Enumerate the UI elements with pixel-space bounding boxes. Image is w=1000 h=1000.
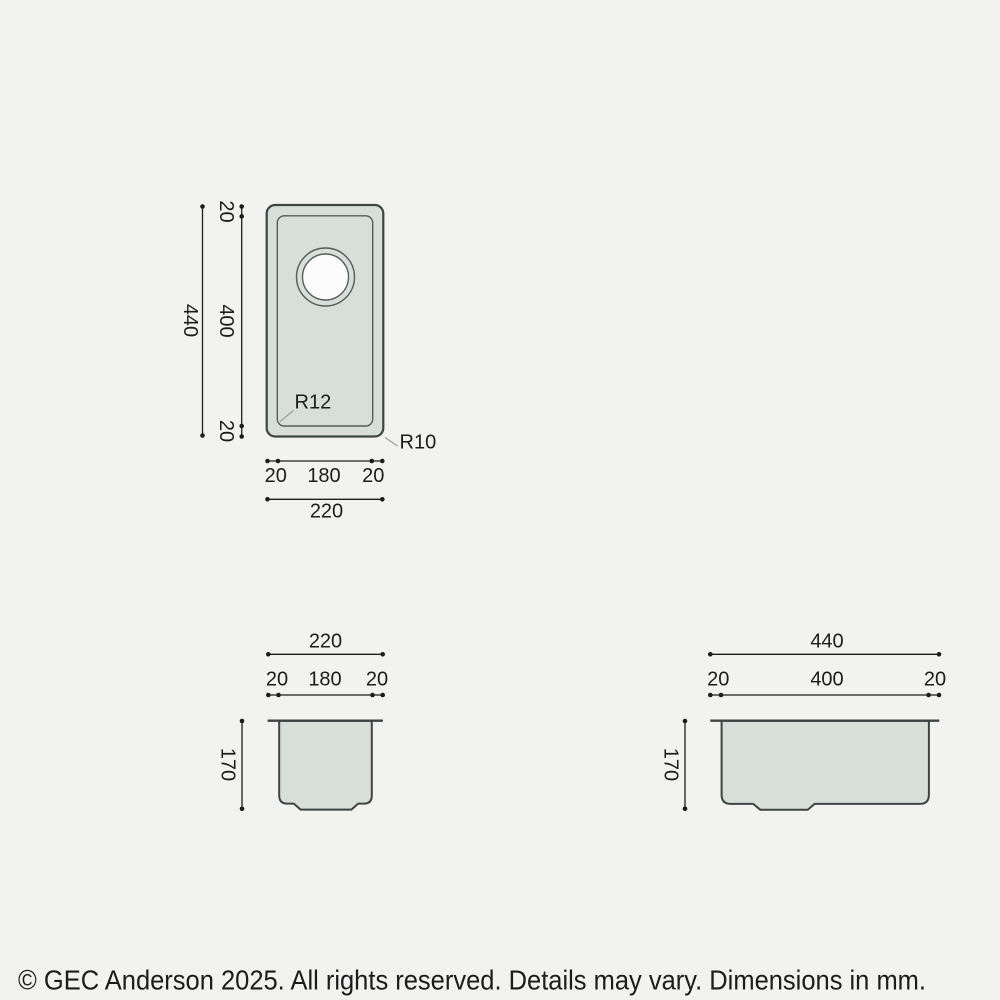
- plan-height-total-dimension: 440: [179, 204, 205, 438]
- dim-dot: [937, 652, 942, 657]
- side-view: 440 20 400 20 170: [660, 630, 947, 811]
- plan-height-segments-dimension: 20 400 20: [215, 200, 244, 442]
- side-width-segments-dimension: 20 400 20: [707, 669, 946, 698]
- plan-width-segments-dimension: 20 180 20: [265, 459, 385, 487]
- dim-dot: [719, 693, 724, 698]
- dim-dot: [239, 204, 244, 209]
- plan-width-segment-label: 20: [362, 465, 384, 487]
- dim-dot: [380, 497, 385, 502]
- dim-dot: [265, 497, 270, 502]
- dim-dot: [380, 652, 385, 657]
- dim-dot: [380, 693, 385, 698]
- side-depth-label: 170: [660, 748, 682, 781]
- plan-width-total-dimension: 220: [265, 497, 384, 523]
- front-width-segment-label: 20: [366, 669, 388, 691]
- leader-line: [385, 438, 398, 447]
- plan-width-segment-label: 20: [265, 465, 287, 487]
- side-depth-dimension: 170: [660, 719, 688, 811]
- dim-dot: [683, 807, 688, 812]
- dim-dot: [683, 719, 688, 724]
- front-width-total-dimension: [266, 652, 385, 657]
- dim-dot: [240, 719, 245, 724]
- plan-height-segment-label: 20: [215, 200, 237, 222]
- front-width-total-label: 220: [309, 630, 342, 652]
- dim-dot: [200, 433, 205, 438]
- plan-outer-radius-callout: R10: [385, 432, 436, 454]
- front-view: 220 20 180 20 170: [217, 630, 389, 811]
- dim-dot: [239, 214, 244, 219]
- front-width-segments-dimension: 20 180 20: [266, 669, 388, 698]
- front-width-segment-label: 180: [308, 669, 341, 691]
- dim-dot: [708, 652, 713, 657]
- front-depth-dimension: 170: [217, 719, 245, 811]
- dim-dot: [266, 693, 271, 698]
- dim-dot: [240, 807, 245, 812]
- dim-dot: [239, 434, 244, 439]
- footer-copyright: © GEC Anderson 2025. All rights reserved…: [18, 964, 926, 995]
- dim-dot: [380, 459, 385, 464]
- side-width-segment-label: 20: [707, 669, 729, 691]
- dim-dot: [937, 693, 942, 698]
- sink-technical-drawing: 440 20 400 20 R12 R10: [0, 0, 1000, 1000]
- dim-dot: [265, 459, 270, 464]
- plan-width-total-label: 220: [310, 501, 343, 523]
- side-width-total-dimension: [708, 652, 941, 657]
- plan-height-segment-label: 400: [215, 304, 237, 337]
- dim-dot: [370, 459, 375, 464]
- side-width-segment-label: 20: [924, 669, 946, 691]
- dim-dot: [200, 204, 205, 209]
- plan-height-total-label: 440: [179, 304, 201, 337]
- side-width-total-label: 440: [810, 630, 843, 652]
- front-depth-label: 170: [217, 748, 239, 781]
- drain-inner-circle: [303, 254, 349, 300]
- dim-dot: [926, 693, 931, 698]
- dim-dot: [276, 693, 281, 698]
- side-bowl-section: [722, 721, 929, 810]
- dim-dot: [370, 693, 375, 698]
- plan-width-segment-label: 180: [307, 465, 340, 487]
- dim-dot: [708, 693, 713, 698]
- plan-outer-radius-label: R10: [400, 432, 437, 454]
- front-width-segment-label: 20: [266, 669, 288, 691]
- plan-inner-radius-label: R12: [295, 392, 332, 414]
- plan-view: 440 20 400 20 R12 R10: [179, 200, 436, 522]
- dim-dot: [276, 459, 281, 464]
- side-width-segment-label: 400: [810, 669, 843, 691]
- dim-dot: [239, 424, 244, 429]
- dim-dot: [266, 652, 271, 657]
- front-bowl-section: [279, 721, 372, 810]
- plan-height-segment-label: 20: [215, 420, 237, 442]
